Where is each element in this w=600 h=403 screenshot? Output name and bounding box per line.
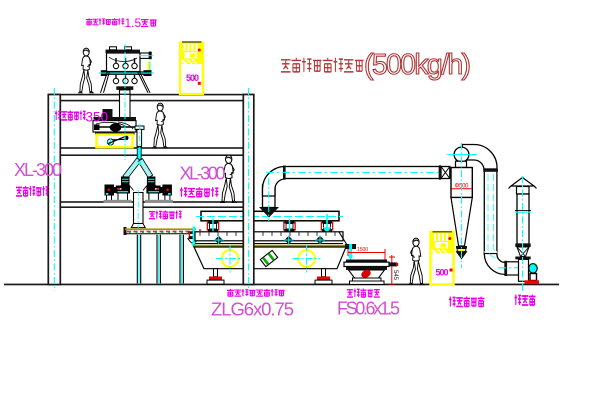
svg-text:1500: 1500 (357, 247, 368, 253)
svg-text:500: 500 (436, 268, 449, 278)
svg-text:1.5: 1.5 (125, 16, 142, 30)
svg-text:(500kg/h): (500kg/h) (364, 49, 471, 81)
svg-text:XL-300: XL-300 (14, 160, 62, 180)
svg-text:XL-300: XL-300 (180, 164, 226, 184)
svg-text:545: 545 (392, 270, 398, 281)
svg-text:350: 350 (86, 110, 109, 125)
svg-text:ZLG6x0.75: ZLG6x0.75 (211, 299, 294, 320)
svg-text:FS0.6x1.5: FS0.6x1.5 (337, 299, 400, 319)
svg-text:500: 500 (186, 73, 199, 83)
